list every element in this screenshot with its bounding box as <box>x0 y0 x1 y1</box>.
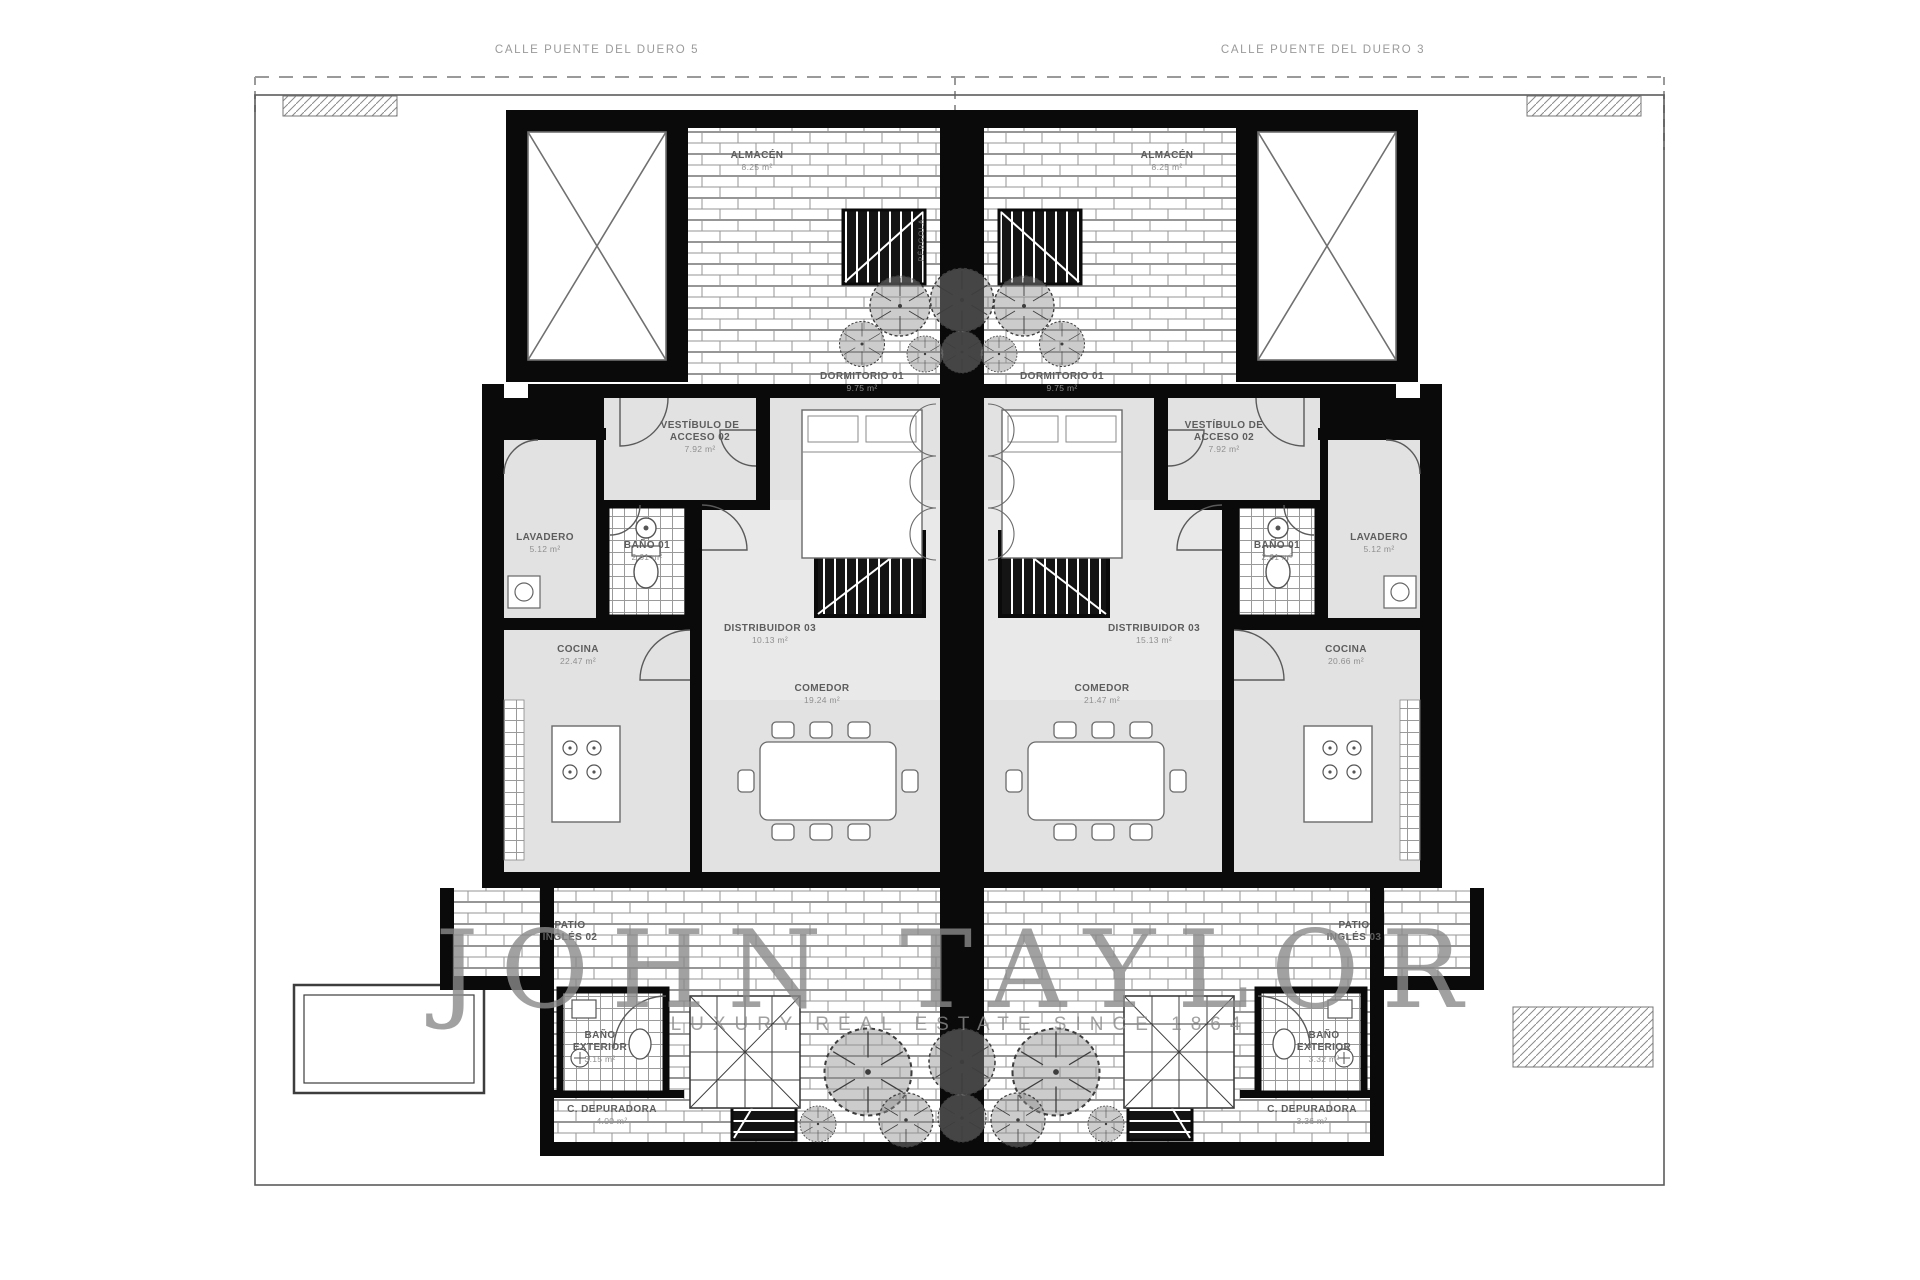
room-label-comedor-right: COMEDOR 21.47 m² <box>1074 683 1129 706</box>
floor-plan-page: CALLE PUENTE DEL DUERO 5 CALLE PUENTE DE… <box>0 0 1920 1280</box>
room-label-comedor-left: COMEDOR 19.24 m² <box>794 683 849 706</box>
room-label-bano-left: BAÑO 01 2.61 m² <box>624 540 670 563</box>
hatched-strip-top-left <box>283 96 397 116</box>
room-label-lavadero-left: LAVADERO 5.12 m² <box>516 532 574 555</box>
dwelling-left-half <box>440 110 962 1156</box>
hatched-strip-top-right <box>1527 96 1641 116</box>
washer <box>508 576 540 608</box>
room-label-depuradora-left: C. DEPURADORA 4.00 m² <box>567 1104 657 1127</box>
room-label-cocina-left: COCINA 22.47 m² <box>557 644 599 667</box>
elevator-shaft <box>528 132 666 360</box>
room-label-almacen-right: ALMACÉN 8.25 m² <box>1141 150 1194 173</box>
room-label-bano-exterior-left: BAÑO EXTERIOR 3.15 m² <box>573 1030 627 1065</box>
stairs-entry <box>843 210 925 284</box>
pool <box>294 985 484 1093</box>
pergola-label: PÉRGOLA <box>917 218 926 261</box>
room-label-dormitorio-left: DORMITORIO 01 9.75 m² <box>820 371 904 394</box>
room-label-distribuidor-left: DISTRIBUIDOR 03 10.13 m² <box>724 623 816 646</box>
dwelling-right-half <box>962 110 1484 1156</box>
room-label-almacen-left: ALMACÉN 8.25 m² <box>731 150 784 173</box>
room-label-patio-right: PATIO INGLÉS 03 <box>1327 920 1382 944</box>
room-label-patio-left: PATIO INGLÉS 02 <box>543 920 598 944</box>
room-label-bano-exterior-right: BAÑO EXTERIOR 3.32 m² <box>1297 1030 1351 1065</box>
room-label-bano-right: BAÑO 01 2.61 m² <box>1254 540 1300 563</box>
pergola-trellis <box>690 996 800 1108</box>
brick-patio-ingles <box>454 888 550 976</box>
room-label-depuradora-right: C. DEPURADORA 3.36 m² <box>1267 1104 1357 1127</box>
room-label-vestibulo-left: VESTÍBULO DE ACCESO 02 7.92 m² <box>661 420 740 455</box>
street-label-right: CALLE PUENTE DEL DUERO 3 <box>1221 44 1425 56</box>
street-label-left: CALLE PUENTE DEL DUERO 5 <box>495 44 699 56</box>
room-label-lavadero-right: LAVADERO 5.12 m² <box>1350 532 1408 555</box>
hatched-strip-bottom-right <box>1513 1007 1653 1067</box>
room-label-dormitorio-right: DORMITORIO 01 9.75 m² <box>1020 371 1104 394</box>
room-label-cocina-right: COCINA 20.66 m² <box>1325 644 1367 667</box>
bed <box>802 410 922 558</box>
floor-plan-drawing <box>0 0 1920 1280</box>
room-label-distribuidor-right: DISTRIBUIDOR 03 15.13 m² <box>1108 623 1200 646</box>
room-label-vestibulo-right: VESTÍBULO DE ACCESO 02 7.92 m² <box>1185 420 1264 455</box>
